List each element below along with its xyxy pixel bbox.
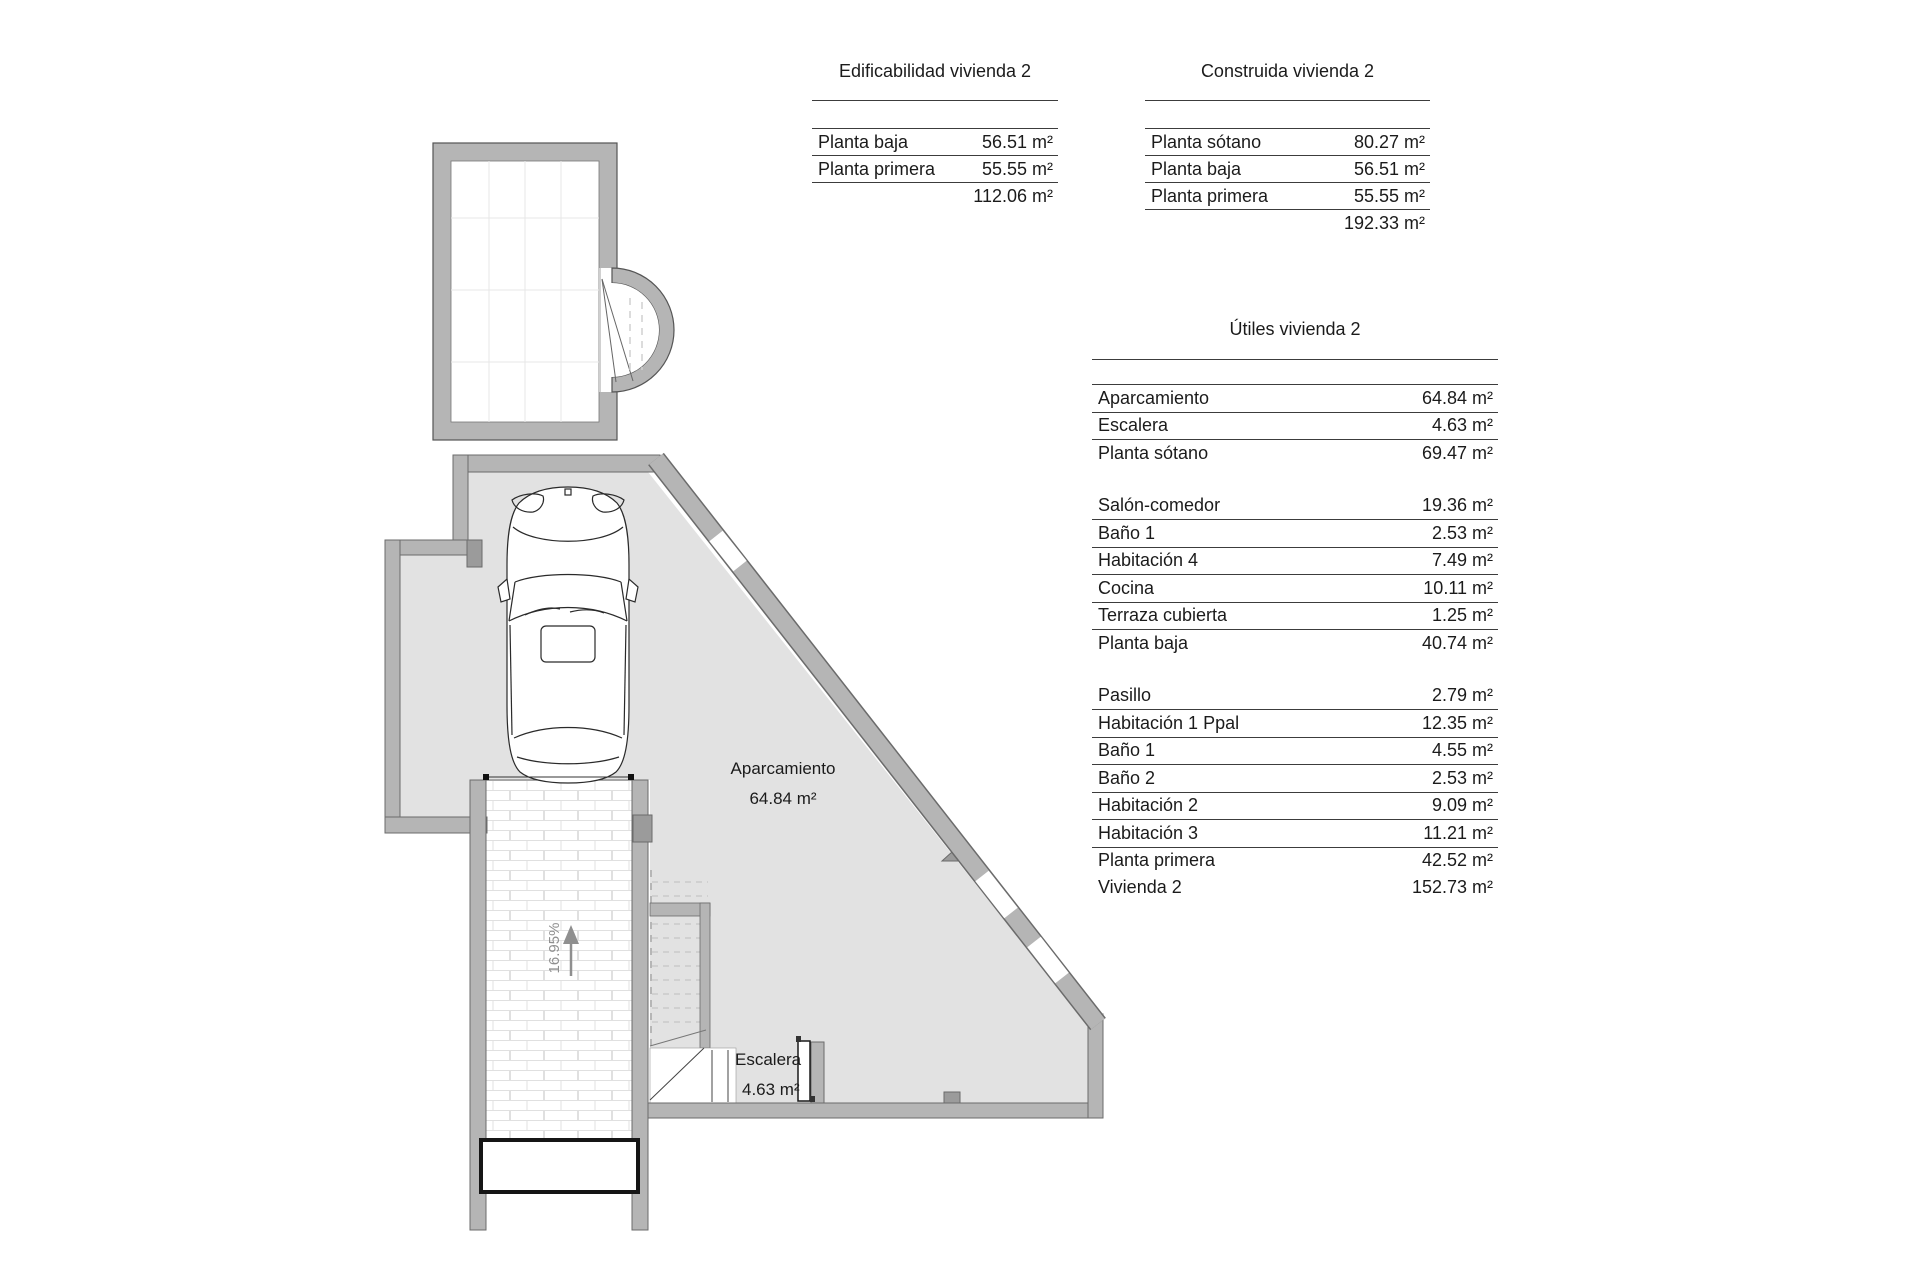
row-value: 2.79 m² bbox=[1432, 685, 1493, 706]
row-label: Habitación 3 bbox=[1098, 823, 1198, 844]
floorplan-page: { "plan": { "labels": { "aparcamiento": … bbox=[0, 0, 1920, 1280]
table-row: 112.06 m² bbox=[812, 183, 1058, 209]
ramp-slope-label: 16.95% bbox=[546, 905, 564, 991]
table-row: Pasillo2.79 m² bbox=[1092, 683, 1498, 711]
row-value: 112.06 m² bbox=[973, 186, 1053, 207]
row-label: Pasillo bbox=[1098, 685, 1151, 706]
row-label: Escalera bbox=[1098, 415, 1168, 436]
row-label: Planta primera bbox=[818, 159, 935, 180]
row-value: 69.47 m² bbox=[1422, 443, 1493, 464]
row-value: 80.27 m² bbox=[1354, 132, 1425, 153]
row-label: Baño 1 bbox=[1098, 740, 1155, 761]
row-label: Planta baja bbox=[1098, 633, 1188, 654]
garage-door-threshold bbox=[481, 1140, 638, 1192]
row-value: 2.53 m² bbox=[1432, 523, 1493, 544]
table-row: Planta sótano69.47 m² bbox=[1092, 440, 1498, 467]
row-label: Planta sótano bbox=[1098, 443, 1208, 464]
table-row: Planta primera42.52 m² bbox=[1092, 848, 1498, 875]
row-label: Habitación 1 Ppal bbox=[1098, 713, 1239, 734]
row-value: 192.33 m² bbox=[1344, 213, 1425, 234]
table-row: Terraza cubierta1.25 m² bbox=[1092, 603, 1498, 631]
row-value: 56.51 m² bbox=[982, 132, 1053, 153]
row-label: Cocina bbox=[1098, 578, 1154, 599]
row-label: Terraza cubierta bbox=[1098, 605, 1227, 626]
row-label: Vivienda 2 bbox=[1098, 877, 1182, 898]
table-construida: Construida vivienda 2 Planta sótano80.27… bbox=[1145, 48, 1430, 236]
row-label: Salón-comedor bbox=[1098, 495, 1220, 516]
row-value: 55.55 m² bbox=[982, 159, 1053, 180]
aparcamiento-label: Aparcamiento bbox=[713, 759, 853, 779]
table-row: Salón-comedor19.36 m² bbox=[1092, 493, 1498, 521]
row-value: 40.74 m² bbox=[1422, 633, 1493, 654]
table-row: Baño 22.53 m² bbox=[1092, 765, 1498, 793]
row-value: 42.52 m² bbox=[1422, 850, 1493, 871]
car-topview bbox=[498, 487, 638, 783]
row-label: Baño 2 bbox=[1098, 768, 1155, 789]
table-row: Escalera4.63 m² bbox=[1092, 413, 1498, 441]
table-row: Habitación 47.49 m² bbox=[1092, 548, 1498, 576]
row-value: 64.84 m² bbox=[1422, 388, 1493, 409]
table-row: Habitación 29.09 m² bbox=[1092, 793, 1498, 821]
table-rows: Planta sótano80.27 m²Planta baja56.51 m²… bbox=[1145, 129, 1430, 236]
section-gap bbox=[1092, 657, 1498, 683]
table-row: Baño 14.55 m² bbox=[1092, 738, 1498, 766]
row-value: 4.63 m² bbox=[1432, 415, 1493, 436]
table-row: Planta baja56.51 m² bbox=[1145, 156, 1430, 183]
table-row: Planta primera55.55 m² bbox=[812, 156, 1058, 183]
aparcamiento-area-label: 64.84 m² bbox=[713, 789, 853, 809]
table-utiles: Útiles vivienda 2 Aparcamiento64.84 m²Es… bbox=[1092, 312, 1498, 901]
table-row: Vivienda 2152.73 m² bbox=[1092, 874, 1498, 901]
row-label: Habitación 2 bbox=[1098, 795, 1198, 816]
row-value: 11.21 m² bbox=[1423, 823, 1493, 844]
table-row: Planta primera55.55 m² bbox=[1145, 183, 1430, 210]
table-row: Habitación 1 Ppal12.35 m² bbox=[1092, 710, 1498, 738]
row-label: Planta primera bbox=[1098, 850, 1215, 871]
table-rows: Planta baja56.51 m²Planta primera55.55 m… bbox=[812, 129, 1058, 209]
row-value: 12.35 m² bbox=[1422, 713, 1493, 734]
table-row: Baño 12.53 m² bbox=[1092, 520, 1498, 548]
table-edificabilidad: Edificabilidad vivienda 2 Planta baja56.… bbox=[812, 48, 1058, 209]
row-label: Planta baja bbox=[1151, 159, 1241, 180]
table-header-gap bbox=[1092, 360, 1498, 385]
escalera-label: Escalera bbox=[735, 1050, 801, 1070]
row-value: 1.25 m² bbox=[1432, 605, 1493, 626]
pool-room bbox=[433, 143, 674, 440]
row-value: 55.55 m² bbox=[1354, 186, 1425, 207]
table-row: Aparcamiento64.84 m² bbox=[1092, 385, 1498, 413]
table-row: Cocina10.11 m² bbox=[1092, 575, 1498, 603]
row-value: 4.55 m² bbox=[1432, 740, 1493, 761]
table-row: Planta baja40.74 m² bbox=[1092, 630, 1498, 657]
row-label: Aparcamiento bbox=[1098, 388, 1209, 409]
escalera-area-label: 4.63 m² bbox=[742, 1080, 800, 1100]
table-row: Planta baja56.51 m² bbox=[812, 129, 1058, 156]
row-value: 9.09 m² bbox=[1432, 795, 1493, 816]
table-row: Planta sótano80.27 m² bbox=[1145, 129, 1430, 156]
row-label: Baño 1 bbox=[1098, 523, 1155, 544]
row-value: 56.51 m² bbox=[1354, 159, 1425, 180]
table-header-gap bbox=[1145, 101, 1430, 129]
row-value: 19.36 m² bbox=[1422, 495, 1493, 516]
row-label: Planta baja bbox=[818, 132, 908, 153]
row-value: 2.53 m² bbox=[1432, 768, 1493, 789]
table-row: Habitación 311.21 m² bbox=[1092, 820, 1498, 848]
row-label: Planta primera bbox=[1151, 186, 1268, 207]
row-value: 7.49 m² bbox=[1432, 550, 1493, 571]
table-title: Construida vivienda 2 bbox=[1145, 48, 1430, 101]
section-gap bbox=[1092, 467, 1498, 493]
table-rows: Aparcamiento64.84 m²Escalera4.63 m²Plant… bbox=[1092, 385, 1498, 901]
table-header-gap bbox=[812, 101, 1058, 129]
table-title: Útiles vivienda 2 bbox=[1092, 312, 1498, 360]
row-label: Habitación 4 bbox=[1098, 550, 1198, 571]
row-label: Planta sótano bbox=[1151, 132, 1261, 153]
table-title: Edificabilidad vivienda 2 bbox=[812, 48, 1058, 101]
table-row: 192.33 m² bbox=[1145, 210, 1430, 236]
row-value: 152.73 m² bbox=[1412, 877, 1493, 898]
row-value: 10.11 m² bbox=[1423, 578, 1493, 599]
